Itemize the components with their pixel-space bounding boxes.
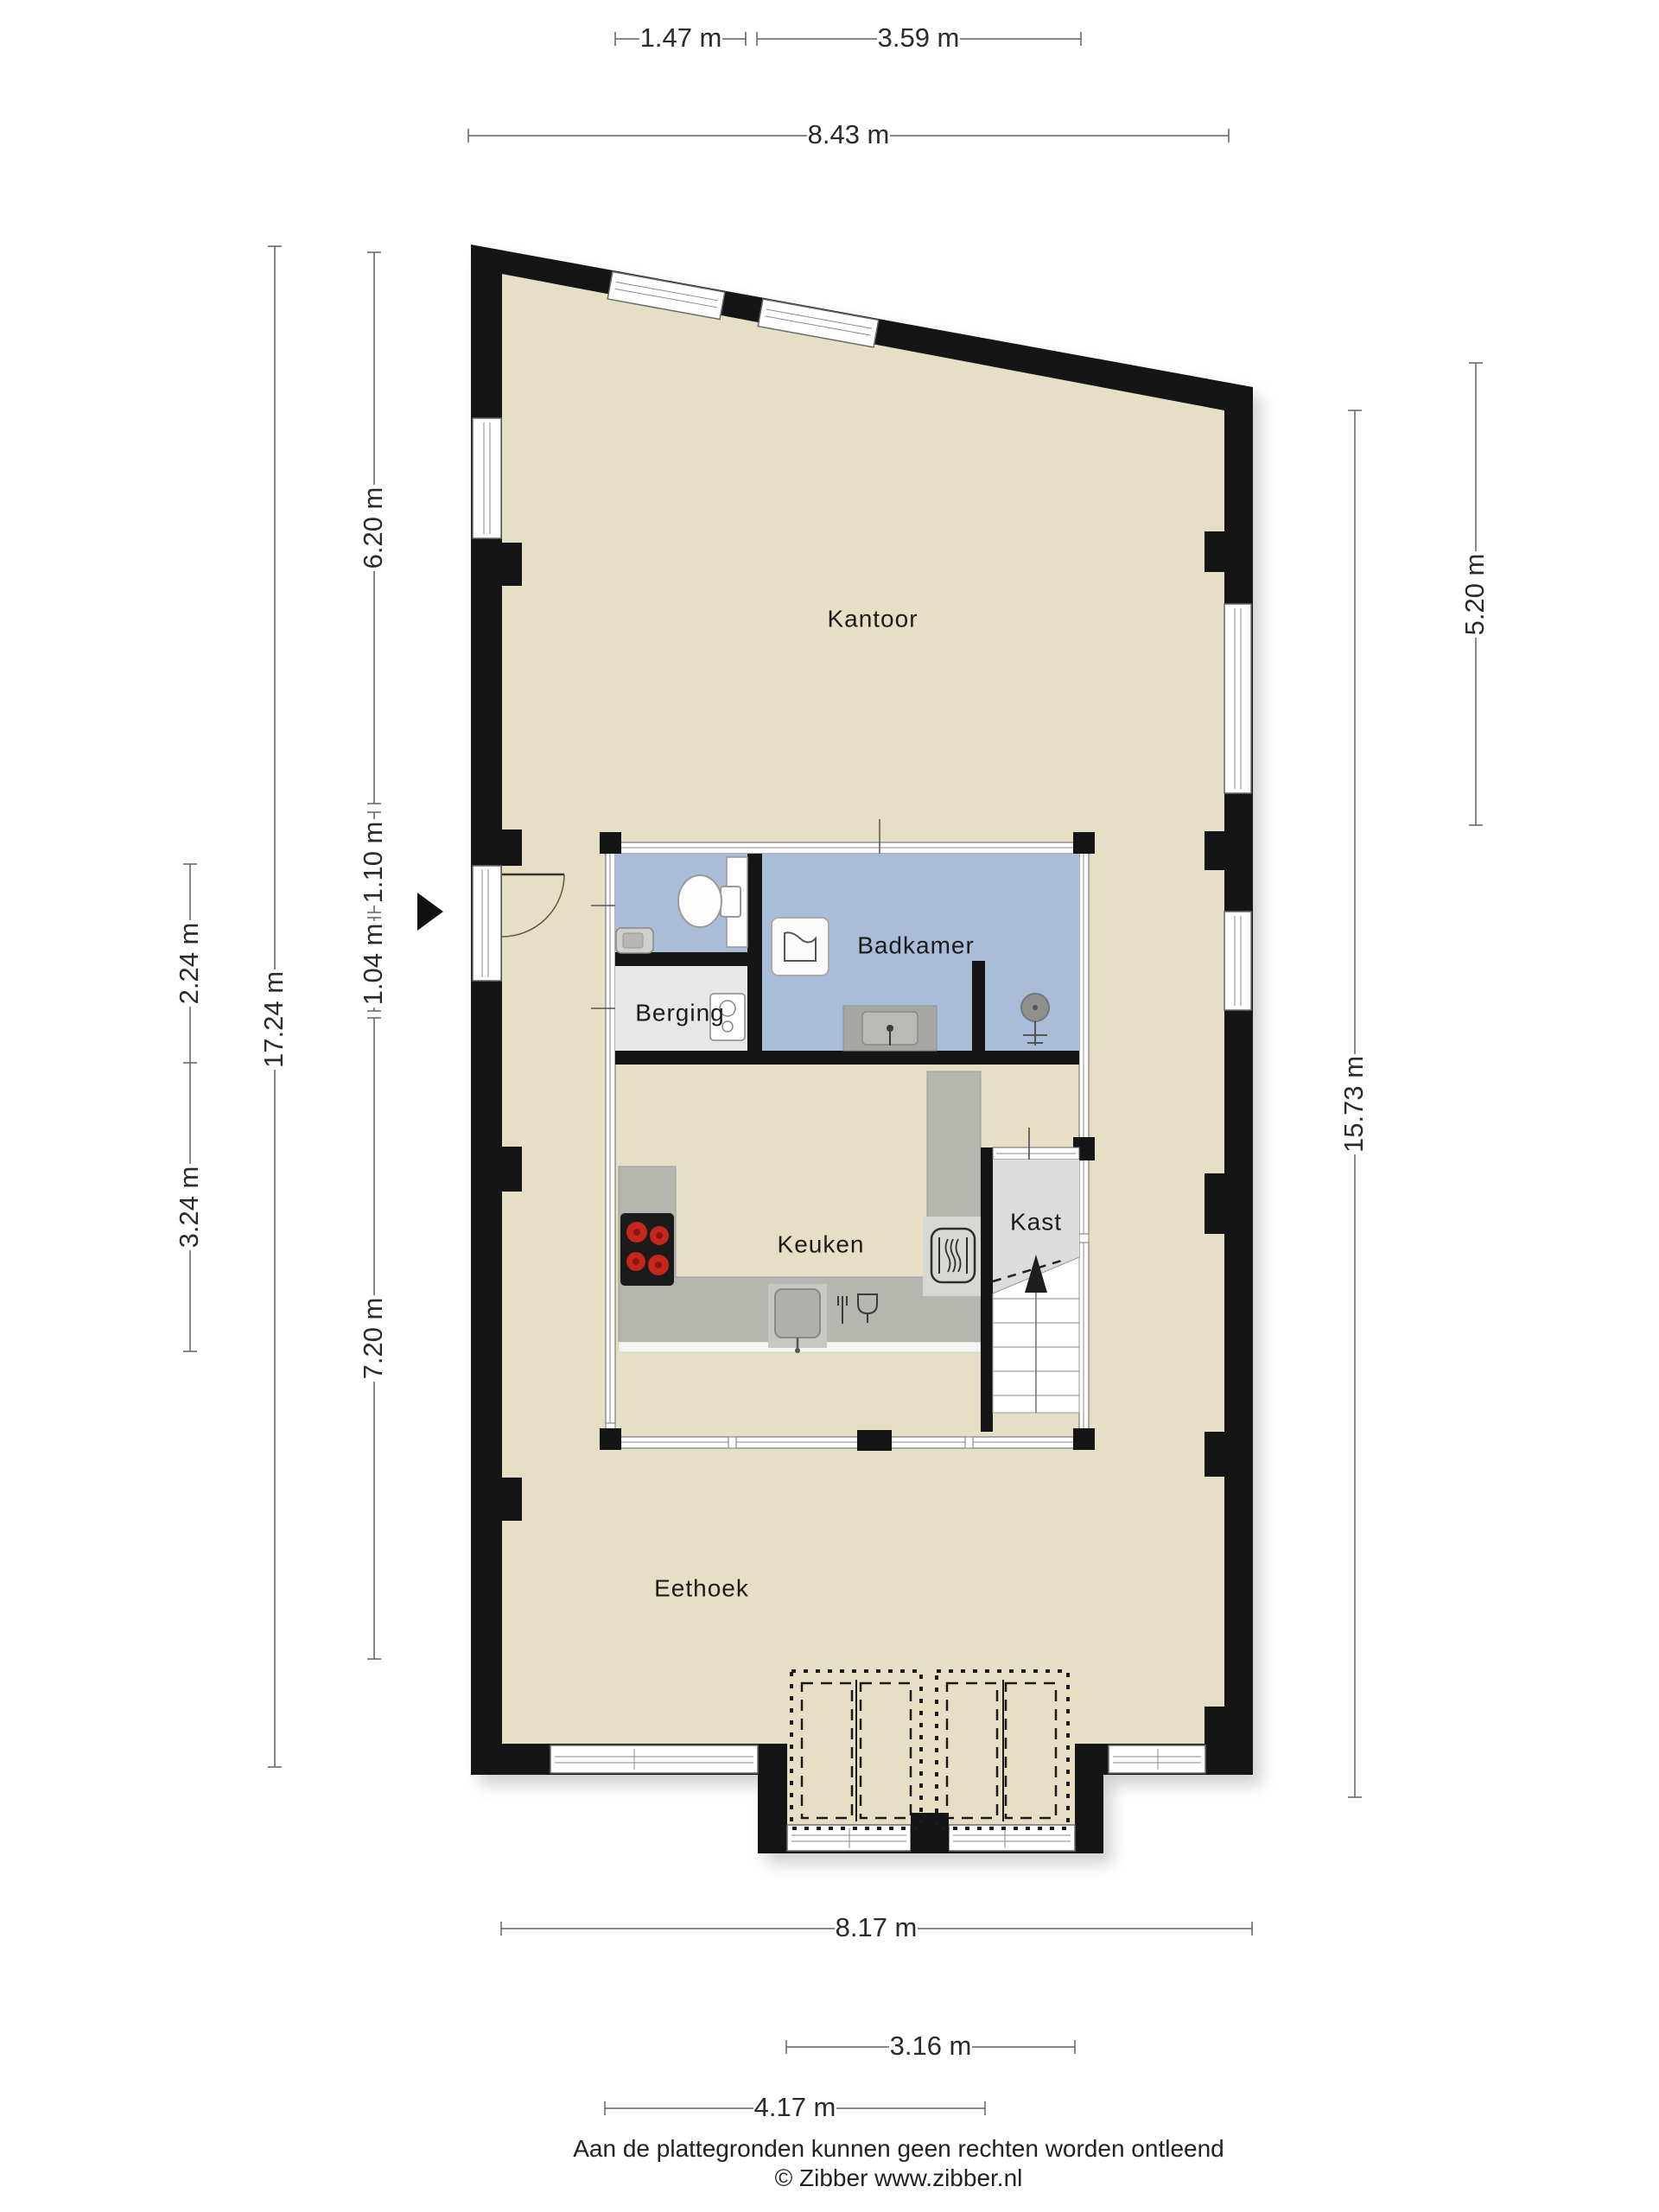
dim-right-5-20: 5.20 m [1459, 363, 1492, 825]
svg-text:5.20 m: 5.20 m [1459, 554, 1490, 636]
dim-left-1-04: 1.04 m [358, 918, 391, 1011]
bottom-wall-window-right [1109, 1745, 1205, 1773]
dim-left-17-24: 17.24 m [258, 246, 291, 1767]
dim-left-3-24: 3.24 m [174, 1063, 207, 1351]
entrance-arrow-icon [417, 893, 443, 931]
svg-text:17.24 m: 17.24 m [258, 971, 289, 1068]
bottom-wall-window-left [550, 1745, 758, 1773]
room-label-kantoor: Kantoor [827, 605, 918, 632]
bath-icon [772, 918, 829, 976]
svg-text:7.20 m: 7.20 m [358, 1298, 388, 1380]
dim-right-15-73: 15.73 m [1338, 410, 1371, 1797]
svg-text:1.47 m: 1.47 m [640, 22, 722, 53]
vestibule-center-post [911, 1813, 949, 1853]
left-wall-window [473, 418, 501, 538]
dim-top-1-47: 1.47 m [615, 22, 746, 54]
dim-bottom-8-17: 8.17 m [501, 1912, 1252, 1944]
cooktop-icon [620, 1213, 674, 1286]
dim-left-7-20: 7.20 m [358, 1018, 391, 1659]
right-wall-window-lower [1224, 912, 1251, 1010]
right-wall-window-upper [1224, 604, 1251, 793]
vanity-sink-icon [843, 1006, 937, 1051]
room-label-berging: Berging [635, 999, 725, 1026]
dim-bottom-4-17: 4.17 m [605, 2092, 985, 2124]
dim-top-3-59: 3.59 m [757, 22, 1081, 54]
wc-sink-icon [616, 928, 653, 953]
floorplan-page: Kantoor Badkamer Berging Keuken Kast Eet… [0, 0, 1659, 2212]
dim-left-1-10: 1.10 m [358, 812, 391, 912]
svg-text:6.20 m: 6.20 m [358, 487, 388, 569]
floorplan-drawing: Kantoor Badkamer Berging Keuken Kast Eet… [0, 0, 1659, 2212]
room-label-kast: Kast [1010, 1208, 1062, 1235]
dim-top-8-43: 8.43 m [468, 119, 1229, 151]
dim-left-6-20: 6.20 m [358, 252, 391, 804]
svg-text:1.04 m: 1.04 m [358, 924, 388, 1006]
footer-credit: © Zibber www.zibber.nl [775, 2164, 1023, 2191]
svg-text:3.24 m: 3.24 m [174, 1166, 204, 1249]
room-label-badkamer: Badkamer [857, 931, 975, 958]
svg-text:8.17 m: 8.17 m [836, 1912, 918, 1942]
svg-text:3.16 m: 3.16 m [890, 2031, 972, 2061]
dim-bottom-3-16: 3.16 m [786, 2031, 1075, 2063]
kast-divider-wall [981, 1147, 993, 1432]
room-label-eethoek: Eethoek [654, 1574, 749, 1601]
svg-text:15.73 m: 15.73 m [1338, 1056, 1369, 1153]
room-label-keuken: Keuken [778, 1230, 865, 1257]
footer-disclaimer: Aan de plattegronden kunnen geen rechten… [573, 2135, 1224, 2162]
svg-text:3.59 m: 3.59 m [878, 22, 960, 53]
svg-text:1.10 m: 1.10 m [358, 822, 388, 904]
svg-text:2.24 m: 2.24 m [174, 923, 204, 1005]
svg-text:8.43 m: 8.43 m [808, 119, 890, 149]
dim-left-2-24: 2.24 m [174, 864, 207, 1063]
svg-text:4.17 m: 4.17 m [754, 2092, 836, 2122]
